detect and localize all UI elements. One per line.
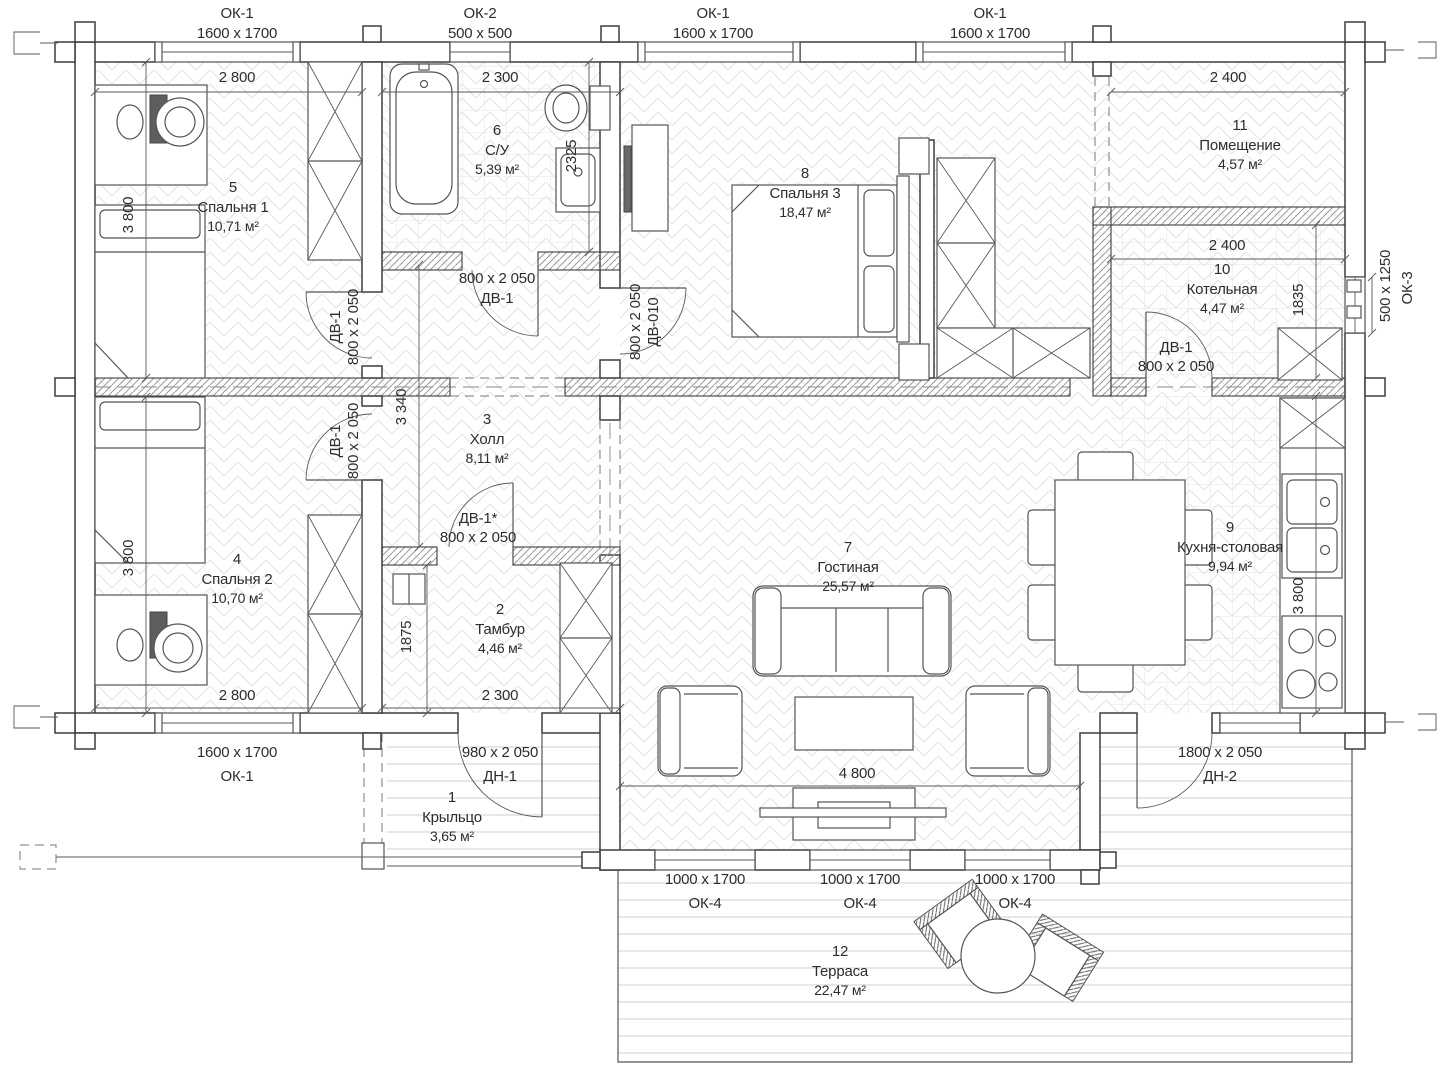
room-name: Спальня 3: [770, 185, 841, 202]
dim: 2 400: [1210, 69, 1247, 86]
floor-plan-drawing: ОК-1 1600 x 1700 ОК-2 500 x 500 ОК-1 160…: [0, 0, 1440, 1080]
desk-bedroom2: [95, 595, 207, 685]
room-number: 5: [229, 179, 237, 196]
door-size: 800 x 2 050: [459, 270, 535, 287]
window-tag: ОК-4: [844, 895, 877, 912]
dim: 1835: [1290, 284, 1307, 317]
dim: 2 300: [482, 69, 519, 86]
dim: 3 340: [393, 389, 410, 426]
room-name: Тамбур: [475, 621, 525, 638]
wardrobe-vestibule: [560, 563, 612, 713]
room-name: Спальня 2: [202, 571, 273, 588]
room-area: 25,57 м²: [822, 578, 874, 594]
bed-bedroom1: [95, 205, 205, 378]
room-area: 9,94 м²: [1208, 558, 1253, 574]
door-tag: ДН-1: [483, 768, 517, 785]
window-tag: ОК-2: [464, 5, 497, 22]
room-number: 9: [1226, 519, 1234, 536]
room-name: Крыльцо: [422, 809, 482, 826]
window-size: 1600 x 1700: [950, 25, 1030, 42]
room-name: Гостиная: [817, 559, 878, 576]
armchair-right: [966, 686, 1050, 776]
room-number: 2: [496, 601, 504, 618]
room-area: 18,47 м²: [779, 204, 831, 220]
door-tag: ДВ-1: [1160, 339, 1193, 356]
window-kitchen-bottom: [1220, 713, 1300, 733]
door-size: 800 x 2 050: [1138, 358, 1214, 375]
dim: 3 800: [120, 540, 137, 577]
window-ok4-3: [965, 850, 1050, 870]
dim: 2 400: [1209, 237, 1246, 254]
window-size: 1600 x 1700: [197, 25, 277, 42]
window-tag: ОК-4: [999, 895, 1032, 912]
room-name: Помещение: [1199, 137, 1281, 154]
window-size: 1000 x 1700: [975, 871, 1055, 888]
door-size: 1800 x 2 050: [1178, 744, 1262, 761]
kitchen-sink: [1282, 474, 1342, 578]
dim: 2 300: [482, 687, 519, 704]
room-number: 6: [493, 122, 501, 139]
coffee-table: [795, 697, 913, 750]
dim: 2 800: [219, 69, 256, 86]
room-number: 12: [832, 943, 848, 960]
room-name: Холл: [470, 431, 505, 448]
window-tag: ОК-1: [221, 768, 254, 785]
window-size: 500 x 500: [448, 25, 512, 42]
room-number: 3: [483, 411, 491, 428]
window-size: 1600 x 1700: [673, 25, 753, 42]
door-tag: ДН-2: [1203, 768, 1237, 785]
door-size: 800 x 2 050: [440, 529, 516, 546]
dim: 2325: [563, 140, 580, 173]
room-name: Терраса: [812, 963, 869, 980]
window-ok1-living-top-1: [638, 42, 800, 62]
window-size: 500 x 1250: [1377, 250, 1394, 322]
room-number: 1: [448, 789, 456, 806]
window-ok1-bedroom2-bottom: [155, 713, 300, 733]
dim: 3 800: [1290, 578, 1307, 615]
window-size: 1000 x 1700: [665, 871, 745, 888]
desk-bedroom1: [95, 85, 207, 185]
door-size: 980 x 2 050: [462, 744, 538, 761]
room-number: 10: [1214, 261, 1230, 278]
room-area: 22,47 м²: [814, 982, 866, 998]
window-ok1-living-top-2: [916, 42, 1072, 62]
door-tag: ДВ-1: [327, 311, 344, 344]
window-ok4-2: [810, 850, 910, 870]
room-area: 5,39 м²: [475, 161, 520, 177]
room-area: 4,47 м²: [1200, 300, 1245, 316]
door-tag: ДВ-1*: [459, 510, 498, 527]
dim: 3 800: [120, 197, 137, 234]
wardrobe-bedroom2: [308, 515, 362, 713]
bathtub: [390, 64, 458, 214]
window-size: 1600 x 1700: [197, 744, 277, 761]
room-name: Кухня-столовая: [1177, 539, 1283, 556]
room-area: 10,70 м²: [211, 590, 263, 606]
window-ok1-bedroom1-top: [155, 42, 300, 62]
room-area: 8,11 м²: [466, 450, 510, 466]
armchair-left: [658, 686, 742, 776]
room-name: С/У: [485, 142, 510, 159]
terrace-table: [961, 919, 1035, 993]
window-tag: ОК-1: [974, 5, 1007, 22]
window-ok2-bathroom-top: [450, 42, 510, 62]
door-size: 800 x 2 050: [627, 284, 644, 360]
kitchen-stove: [1282, 616, 1342, 708]
room-number: 4: [233, 551, 241, 568]
floor-plan-page: ОК-1 1600 x 1700 ОК-2 500 x 500 ОК-1 160…: [0, 0, 1440, 1080]
door-size: 800 x 2 050: [345, 403, 362, 479]
room-area: 4,57 м²: [1218, 156, 1263, 172]
sofa: [753, 586, 951, 676]
room-area: 4,46 м²: [478, 640, 523, 656]
door-tag: ДВ-1: [327, 425, 344, 458]
window-size: 1000 x 1700: [820, 871, 900, 888]
window-tag: ОК-1: [697, 5, 730, 22]
door-tag: ДВ-010: [645, 298, 662, 347]
room-number: 8: [801, 165, 809, 182]
bed-bedroom2: [95, 397, 205, 563]
dim: 4 800: [839, 765, 876, 782]
window-tag: ОК-3: [1399, 272, 1416, 305]
dining-table: [1028, 452, 1212, 692]
room-number: 11: [1232, 117, 1247, 134]
window-tag: ОК-1: [221, 5, 254, 22]
room-name: Котельная: [1187, 281, 1258, 298]
door-size: 800 x 2 050: [345, 289, 362, 365]
window-tag: ОК-4: [689, 895, 722, 912]
dim: 1875: [398, 621, 415, 654]
shoe-cabinet: [393, 574, 425, 604]
dim: 2 800: [219, 687, 256, 704]
door-tag: ДВ-1: [481, 290, 514, 307]
window-ok4-1: [655, 850, 755, 870]
room-area: 3,65 м²: [430, 828, 475, 844]
room-name: Спальня 1: [198, 199, 269, 216]
room-area: 10,71 м²: [207, 218, 259, 234]
room-number: 7: [844, 539, 852, 556]
